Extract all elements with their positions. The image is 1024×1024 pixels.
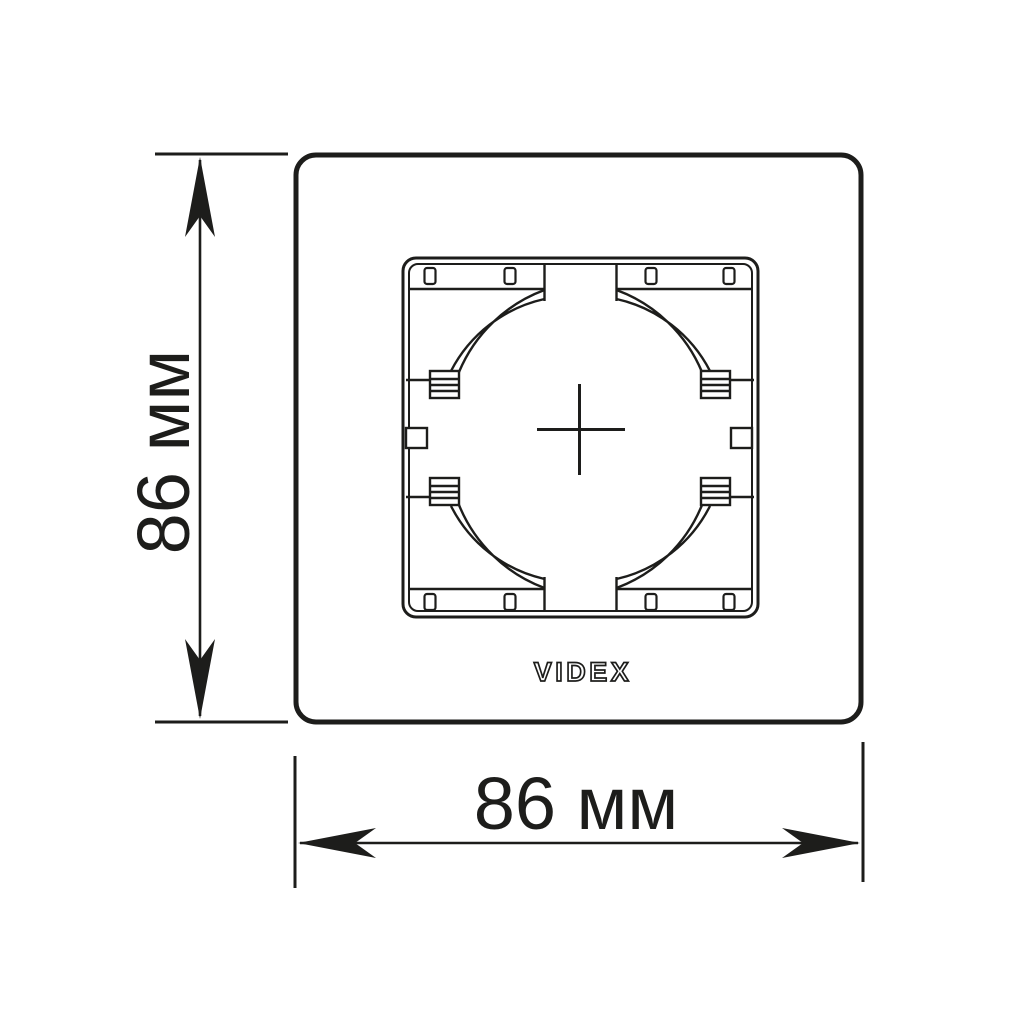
brand-logo: VIDEX [534, 657, 633, 687]
faceplate: VIDEX [296, 155, 861, 722]
drawing-canvas: VIDEX 86 мм 86 мм [0, 0, 1024, 1024]
side-notch [406, 428, 427, 448]
horizontal-dimension: 86 мм [295, 742, 863, 888]
faceplate-dimension-drawing: VIDEX 86 мм 86 мм [0, 0, 1024, 1024]
horizontal-dimension-label: 86 мм [474, 762, 679, 845]
vertical-dimension: 86 мм [122, 154, 288, 722]
side-notch [731, 428, 752, 448]
vertical-dimension-label: 86 мм [122, 350, 205, 555]
